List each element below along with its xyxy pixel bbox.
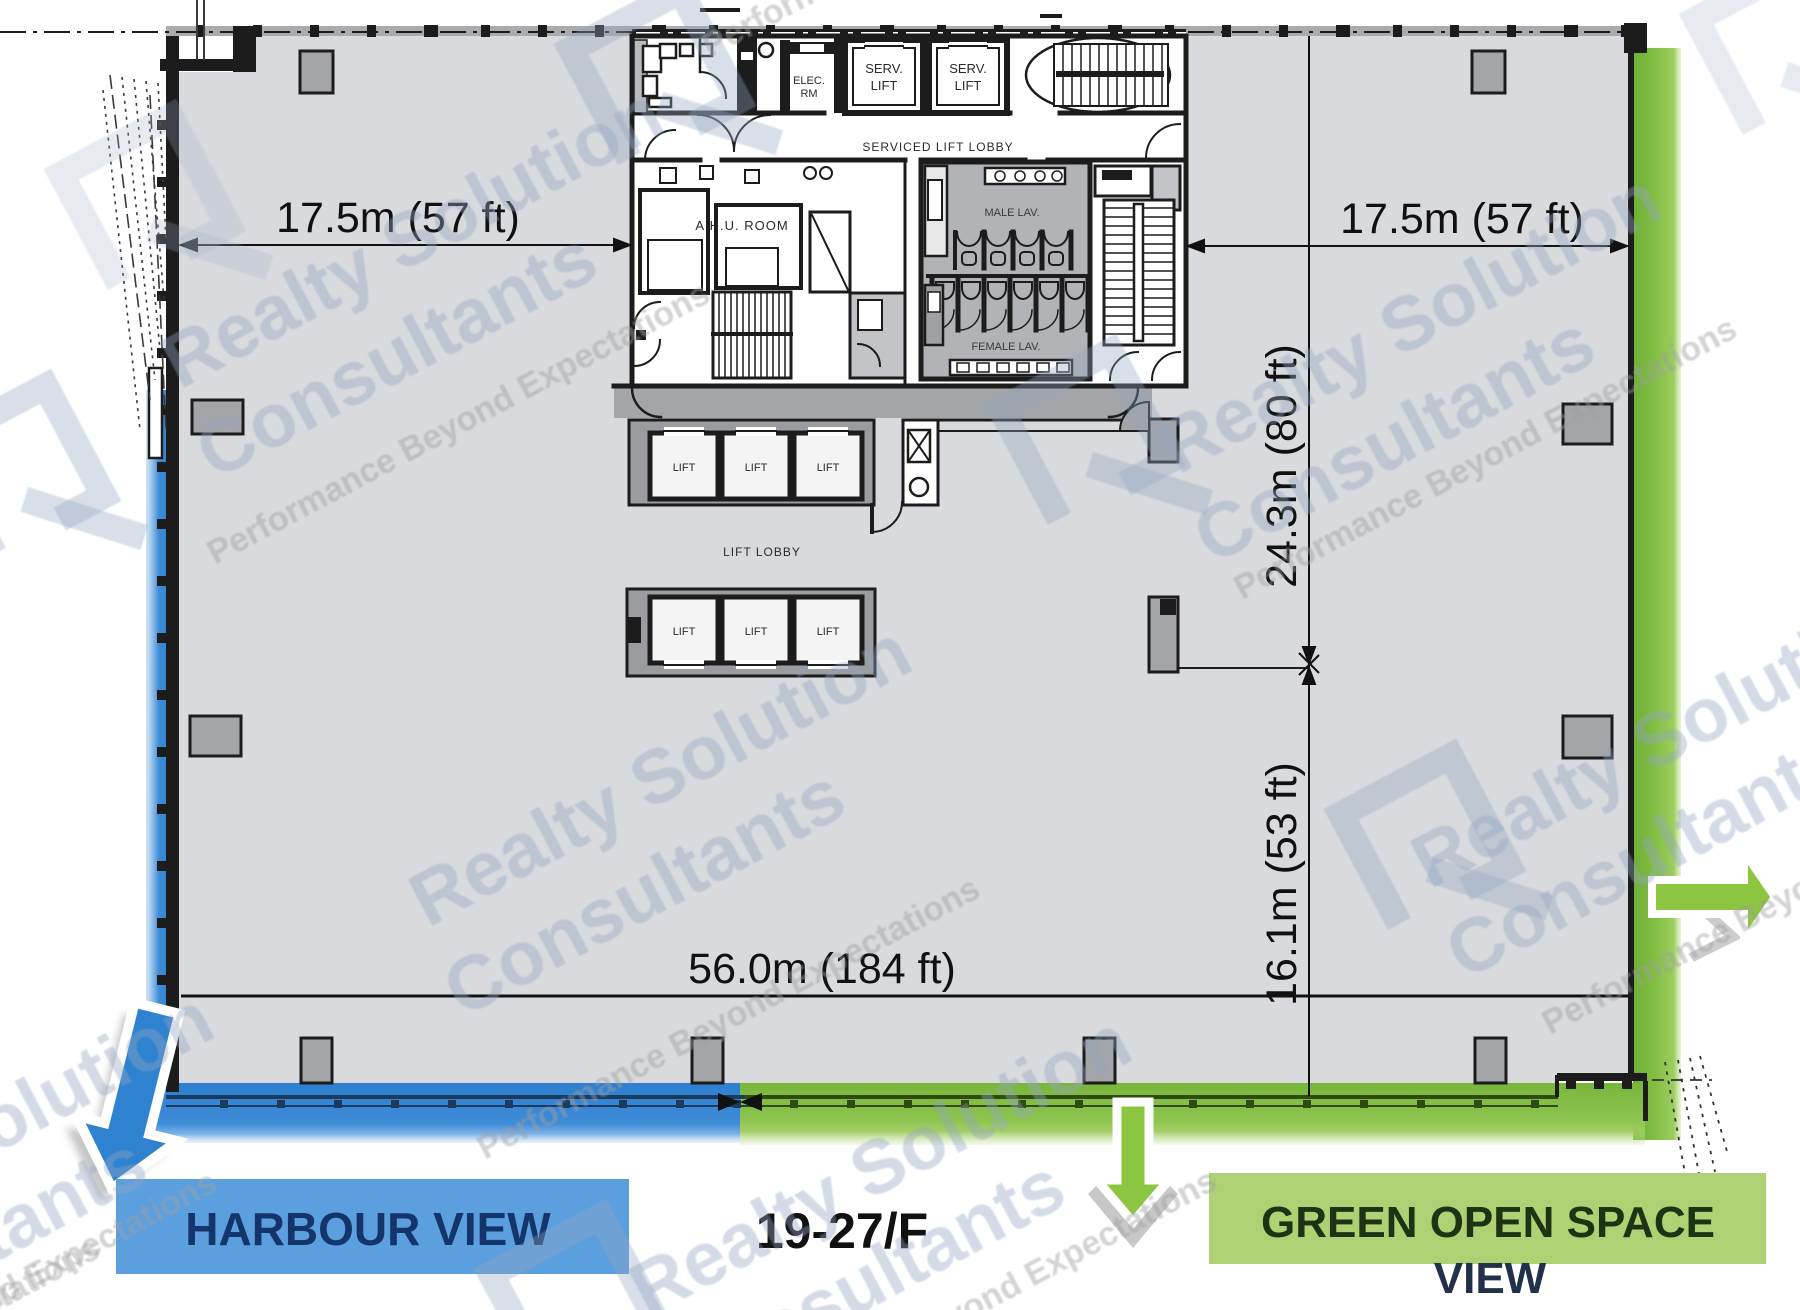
svg-text:HARBOUR VIEW: HARBOUR VIEW [185, 1203, 551, 1255]
svg-text:LIFT: LIFT [673, 626, 696, 638]
svg-text:MALE LAV.: MALE LAV. [984, 207, 1039, 219]
svg-text:LIFT LOBBY: LIFT LOBBY [723, 545, 801, 559]
svg-text:SERV.: SERV. [949, 61, 987, 76]
svg-text:LIFT: LIFT [817, 462, 840, 474]
svg-text:A.H.U. ROOM: A.H.U. ROOM [695, 218, 788, 233]
svg-text:LIFT: LIFT [955, 78, 982, 93]
svg-text:ELEC.: ELEC. [793, 75, 825, 87]
svg-text:SERV.: SERV. [865, 61, 903, 76]
svg-text:GREEN OPEN SPACE: GREEN OPEN SPACE [1261, 1198, 1715, 1247]
svg-text:FEMALE LAV.: FEMALE LAV. [971, 341, 1040, 353]
svg-text:16.1m (53 ft): 16.1m (53 ft) [1258, 762, 1306, 1006]
svg-text:SERVICED LIFT LOBBY: SERVICED LIFT LOBBY [862, 140, 1013, 154]
svg-text:VIEW: VIEW [1434, 1254, 1547, 1303]
svg-text:LIFT: LIFT [871, 78, 898, 93]
svg-text:LIFT: LIFT [673, 462, 696, 474]
svg-text:RM: RM [800, 88, 817, 100]
svg-text:LIFT: LIFT [745, 462, 768, 474]
svg-text:LIFT: LIFT [745, 626, 768, 638]
